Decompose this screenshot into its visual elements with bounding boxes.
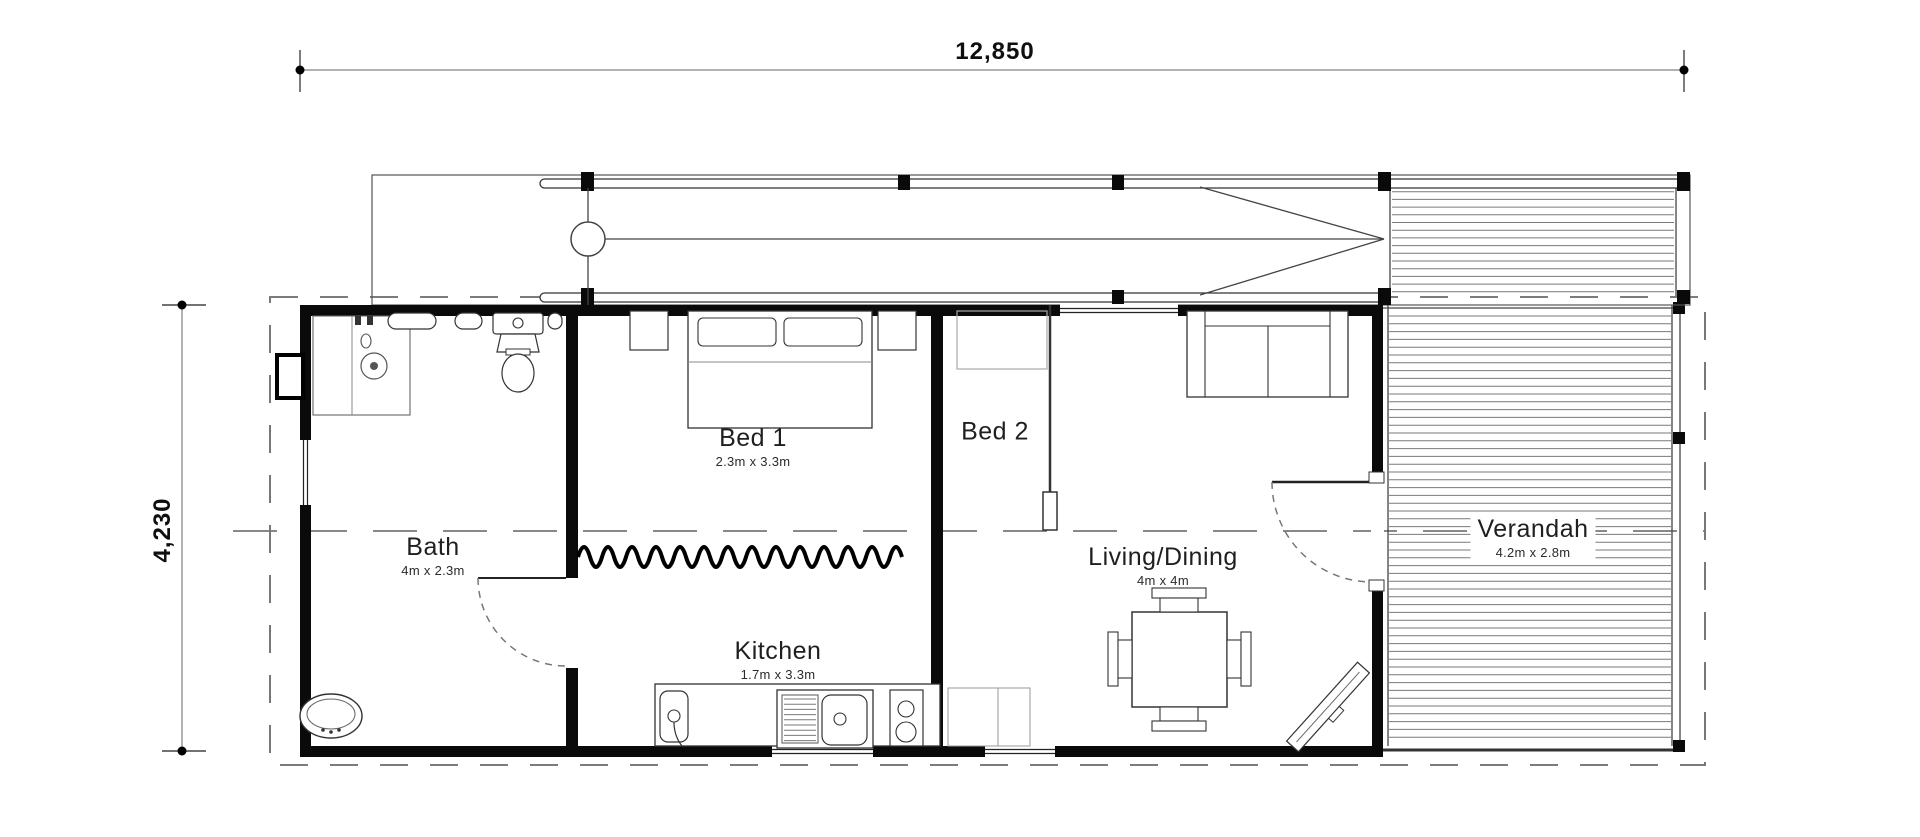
room-size: 1.7m x 3.3m	[735, 668, 822, 683]
roof-vent-circle	[571, 222, 605, 256]
room-label-bed1: Bed 1 2.3m x 3.3m	[716, 424, 791, 470]
wavy-wall-symbol	[578, 547, 902, 567]
kitchen-sink-unit	[777, 690, 873, 748]
window-bottom-living	[985, 745, 1055, 758]
meter-box	[277, 355, 303, 398]
dimension-width-label: 12,850	[955, 38, 1034, 66]
laundry-tub	[300, 694, 362, 738]
room-name: Living/Dining	[1088, 543, 1238, 572]
bed2-door-jamb	[1043, 492, 1057, 530]
fridge-space	[948, 688, 998, 746]
chair	[1160, 707, 1198, 721]
bedside-table	[878, 311, 916, 350]
room-name: Bed 2	[961, 418, 1029, 447]
room-size: 2.3m x 3.3m	[716, 455, 791, 470]
dining-setting	[1108, 588, 1251, 731]
shower	[313, 316, 410, 415]
kitchen-bench	[655, 684, 1030, 748]
window-top-living	[1060, 304, 1178, 317]
room-label-kitchen: Kitchen 1.7m x 3.3m	[735, 637, 822, 683]
verandah-roof-sheeting	[1392, 184, 1674, 292]
pantry-space	[998, 688, 1030, 746]
room-size: 4m x 4m	[1088, 574, 1238, 589]
bed1-furniture	[630, 311, 916, 428]
chair	[1152, 588, 1206, 598]
chair	[1227, 640, 1241, 678]
roof-plan	[372, 172, 1690, 305]
room-label-bath: Bath 4m x 2.3m	[401, 533, 464, 579]
room-size: 4m x 2.3m	[401, 564, 464, 579]
bath-fixtures	[277, 313, 562, 738]
sofa	[1187, 311, 1348, 397]
room-name: Verandah	[1470, 515, 1595, 544]
bed2-robe	[957, 311, 1047, 369]
room-name: Bath	[401, 533, 464, 562]
room-label-bed2: Bed 2	[961, 418, 1029, 447]
dimension-lines	[162, 50, 1689, 756]
bed2-furniture	[957, 311, 1047, 369]
room-label-verandah: Verandah 4.2m x 2.8m	[1470, 515, 1595, 561]
room-name: Bed 1	[716, 424, 791, 453]
bedside-table	[630, 311, 668, 350]
roof-hip-line-upper	[1200, 187, 1384, 239]
chair	[1160, 598, 1198, 612]
floor-plan-page: 12,850 4,230 Bath 4m x 2.3m Bed 1 2.3m x…	[0, 0, 1920, 837]
chair	[1108, 632, 1118, 686]
pillow	[784, 318, 862, 346]
chair	[1118, 640, 1132, 678]
kitchen-sink-small	[660, 691, 688, 746]
floor-plan-drawing	[0, 0, 1920, 837]
tv-unit	[1287, 662, 1374, 755]
dining-table	[1132, 612, 1227, 707]
roof-hip-line-lower	[1200, 239, 1384, 295]
window-left-bath	[299, 440, 312, 505]
dimension-height-label: 4,230	[149, 497, 177, 562]
pillow	[698, 318, 776, 346]
bath-door	[478, 578, 566, 666]
room-size: 4.2m x 2.8m	[1470, 546, 1595, 561]
chair	[1152, 721, 1206, 731]
room-label-living-dining: Living/Dining 4m x 4m	[1088, 543, 1238, 589]
chair	[1241, 632, 1251, 686]
room-name: Kitchen	[735, 637, 822, 666]
toilet	[493, 313, 543, 392]
cooktop	[890, 690, 923, 746]
